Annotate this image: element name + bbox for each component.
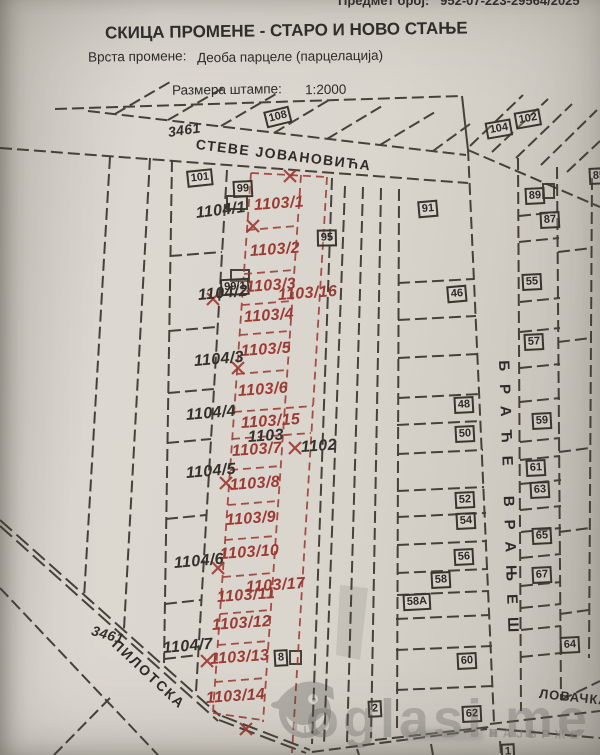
parcel-box-64: 64	[559, 636, 580, 654]
parcel-box-65: 65	[531, 527, 552, 545]
parcel-box-85: 85	[588, 167, 600, 185]
case-number-line: Предмет број: 952-07-223-29564/2025	[338, 0, 580, 8]
parcel-box-61: 61	[525, 459, 546, 477]
parcel-box-89: 89	[524, 187, 545, 205]
street-name-steve-jovanovica: СТЕВЕ ЈОВАНОВИЋА	[195, 136, 372, 173]
parcel-box-95: 95	[317, 229, 338, 246]
parcel-box-104: 104	[485, 118, 514, 139]
new-parcel-label-1103-5: 1103/5	[240, 340, 291, 361]
new-parcel-label-1103-4: 1103/4	[243, 306, 294, 327]
new-parcel-label-1103-14: 1103/14	[205, 686, 266, 708]
parcel-box-57: 57	[523, 333, 544, 351]
new-parcel-label-1103-1: 1103/1	[253, 194, 304, 215]
parcel-box-52: 52	[454, 491, 475, 509]
watermark-blurred-word	[405, 729, 483, 741]
parcel-box-67: 67	[531, 566, 552, 584]
print-scale-value: 1:2000	[305, 82, 347, 98]
new-parcel-label-1103-2: 1103/2	[249, 240, 300, 261]
new-parcel-label-1103-11: 1103/11	[216, 585, 275, 607]
change-type-label: Врста промене:	[88, 48, 187, 64]
new-parcel-label-1103-9: 1103/9	[225, 509, 276, 530]
parcel-box-87: 87	[539, 211, 560, 229]
parcel-box-46: 46	[446, 285, 468, 304]
parcel-box-55: 55	[521, 273, 542, 291]
print-scale-label: Размера штампе:	[172, 81, 282, 98]
parcel-box-50: 50	[454, 425, 475, 443]
new-parcel-label-1103-16: 1103/16	[277, 283, 338, 305]
new-parcel-label-1103-13: 1103/13	[209, 647, 270, 669]
case-number-value: 952-07-223-29564/2025	[440, 0, 580, 8]
parcel-box-91: 91	[417, 200, 439, 219]
old-parcel-label-1104-2: 1104/2	[197, 283, 249, 305]
watermark-tagline: НАЈБРЖЕ	[489, 726, 584, 742]
old-parcel-label-1103: 1103	[247, 427, 284, 447]
parcel-box-102: 102	[514, 108, 543, 129]
street-name-brace-vranjes: БРАЋЕ ВРАЊЕШ	[495, 360, 522, 645]
scanned-cadastral-sketch: Предмет број: 952-07-223-29564/2025 СКИЦ…	[0, 0, 600, 755]
road-number-3461-bottom: 3461	[90, 622, 126, 646]
parcel-box-56: 56	[453, 548, 474, 566]
parcel-box-99: 99	[232, 180, 253, 198]
parcel-box-59: 59	[531, 412, 552, 430]
parcel-box-60: 60	[456, 652, 477, 670]
parcel-box-63: 63	[529, 481, 550, 499]
parcel-box-58: 58	[430, 571, 451, 589]
old-parcel-label-1104-3: 1104/3	[193, 349, 245, 371]
parcel-box-8: 8	[274, 649, 289, 667]
old-parcel-label-1104-6: 1104/6	[173, 551, 225, 573]
parcel-box-101: 101	[186, 168, 214, 188]
new-parcel-label-1103-6: 1103/6	[237, 380, 288, 401]
new-parcel-label-1103-12: 1103/12	[211, 613, 272, 635]
parcel-box-48: 48	[453, 396, 474, 414]
case-number-label: Предмет број:	[338, 0, 429, 8]
old-parcel-label-1104-4: 1104/4	[185, 403, 237, 425]
old-parcel-label-1102: 1102	[300, 437, 337, 457]
parcel-box-108: 108	[263, 106, 293, 129]
parcel-box-54: 54	[455, 512, 476, 530]
change-type-value: Деоба парцеле (парцелација)	[197, 48, 383, 66]
old-parcel-label-1104-1: 1104/1	[195, 199, 247, 223]
new-parcel-label-1103-10: 1103/10	[219, 542, 280, 564]
page-title: СКИЦА ПРОМЕНЕ - СТАРО И НОВО СТАЊЕ	[105, 18, 468, 43]
old-parcel-label-1104-7: 1104/7	[162, 636, 214, 658]
parcel-box-58A: 58A	[402, 593, 431, 611]
new-parcel-label-1103-8: 1103/8	[229, 474, 280, 495]
